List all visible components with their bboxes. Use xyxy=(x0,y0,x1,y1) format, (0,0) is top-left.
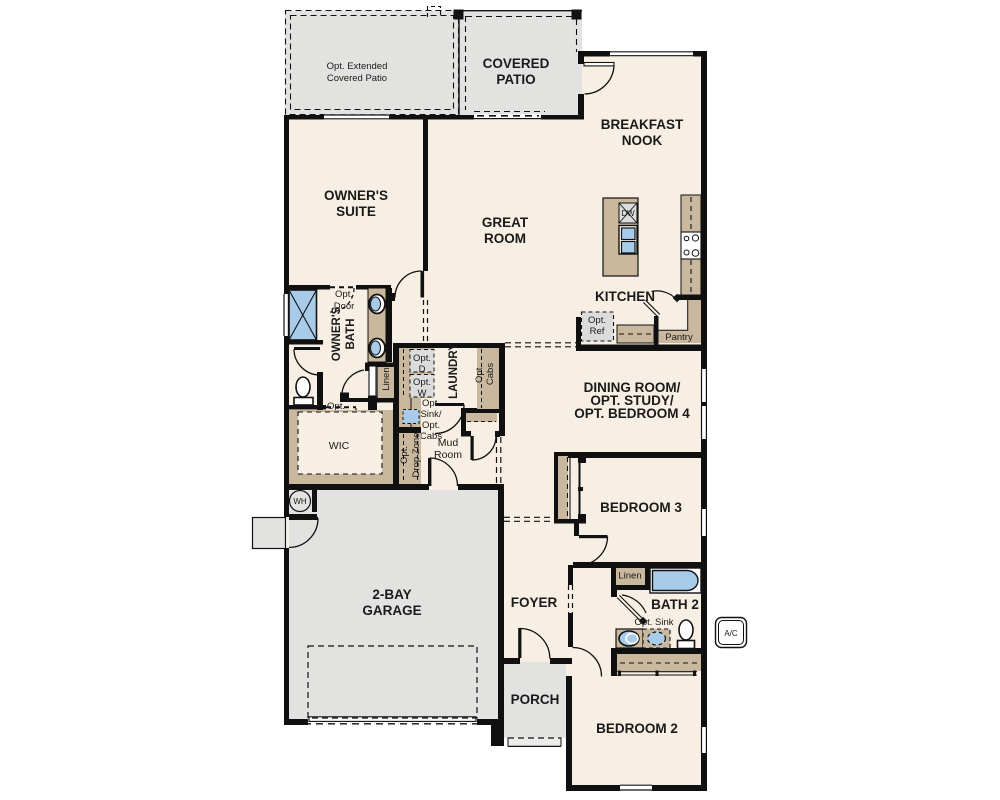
svg-text:Mud: Mud xyxy=(438,437,459,449)
svg-text:GARAGE: GARAGE xyxy=(362,603,421,618)
svg-text:A/C: A/C xyxy=(724,629,738,638)
svg-text:SUITE: SUITE xyxy=(336,204,376,219)
svg-text:OPT. BEDROOM 4: OPT. BEDROOM 4 xyxy=(574,406,690,421)
svg-text:Opt.: Opt. xyxy=(474,365,485,383)
svg-text:PATIO: PATIO xyxy=(496,72,535,87)
svg-text:FOYER: FOYER xyxy=(511,595,558,610)
svg-text:Opt.: Opt. xyxy=(335,289,353,300)
svg-text:Opt.: Opt. xyxy=(588,315,606,326)
svg-text:Opt.: Opt. xyxy=(399,446,410,464)
svg-text:Opt.: Opt. xyxy=(422,398,440,409)
svg-text:Opt.: Opt. xyxy=(413,353,431,364)
svg-text:BREAKFAST: BREAKFAST xyxy=(601,117,684,132)
svg-text:Opt. Sink: Opt. Sink xyxy=(634,617,673,628)
svg-text:Opt.: Opt. xyxy=(422,420,440,431)
svg-text:PORCH: PORCH xyxy=(511,692,560,707)
svg-text:Linen: Linen xyxy=(618,571,641,582)
svg-text:Drop Zone: Drop Zone xyxy=(411,433,422,478)
svg-text:WIC: WIC xyxy=(329,440,350,452)
svg-text:Ref: Ref xyxy=(590,326,605,337)
svg-text:OWNER'S: OWNER'S xyxy=(331,306,343,361)
svg-text:Linen: Linen xyxy=(381,367,392,390)
svg-text:Covered Patio: Covered Patio xyxy=(327,73,387,84)
svg-text:Opt. Extended: Opt. Extended xyxy=(327,61,388,72)
svg-text:OWNER'S: OWNER'S xyxy=(324,188,388,203)
svg-text:D: D xyxy=(419,364,426,375)
svg-text:2-BAY: 2-BAY xyxy=(372,587,411,602)
svg-text:KITCHEN: KITCHEN xyxy=(595,289,655,304)
svg-text:Cabs: Cabs xyxy=(485,363,496,385)
svg-text:WH: WH xyxy=(293,497,307,506)
svg-text:BATH 2: BATH 2 xyxy=(651,597,699,612)
svg-text:COVERED: COVERED xyxy=(483,56,550,71)
svg-text:GREAT: GREAT xyxy=(482,215,529,230)
svg-text:Room: Room xyxy=(434,449,462,461)
svg-text:BEDROOM 2: BEDROOM 2 xyxy=(596,721,678,736)
svg-text:Opt.: Opt. xyxy=(413,377,431,388)
svg-text:NOOK: NOOK xyxy=(622,133,663,148)
svg-text:BATH: BATH xyxy=(345,318,357,349)
svg-text:Sink/: Sink/ xyxy=(420,409,441,420)
svg-text:Pantry: Pantry xyxy=(665,332,693,343)
svg-text:LAUNDRY: LAUNDRY xyxy=(448,343,460,399)
svg-text:BEDROOM 3: BEDROOM 3 xyxy=(600,500,682,515)
svg-text:DW: DW xyxy=(621,209,635,218)
svg-text:ROOM: ROOM xyxy=(484,231,526,246)
